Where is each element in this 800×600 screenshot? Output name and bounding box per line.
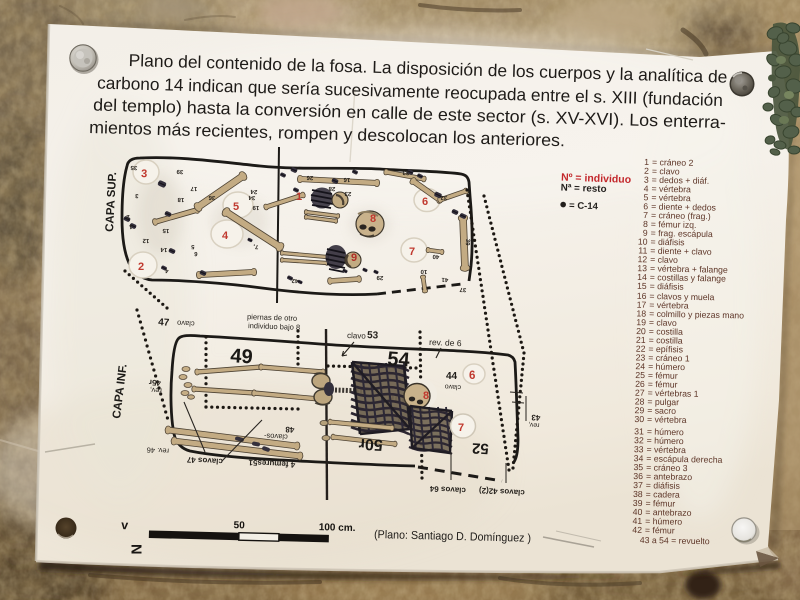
svg-text:clavos-: clavos- [263,431,288,441]
svg-text:48: 48 [285,425,295,434]
svg-text:50: 50 [233,520,245,531]
svg-text:40: 40 [432,253,440,259]
svg-text:N: N [128,544,144,554]
svg-text:39: 39 [464,238,471,246]
svg-text:1: 1 [296,191,302,203]
svg-text:individuo bajo 8: individuo bajo 8 [248,321,300,332]
svg-text:23: 23 [344,190,352,196]
svg-text:19: 19 [252,204,260,210]
svg-text:28: 28 [328,185,336,191]
svg-text:18: 18 [177,196,185,202]
svg-text:clavos 64: clavos 64 [429,484,466,495]
svg-text:29: 29 [376,274,384,280]
svg-text:2: 2 [138,261,144,273]
svg-text:8: 8 [423,390,429,402]
svg-text:52: 52 [472,439,490,457]
svg-text:49: 49 [230,345,254,368]
svg-text:26: 26 [306,174,314,180]
svg-text:50r: 50r [358,435,383,453]
svg-text:6: 6 [469,370,475,382]
svg-text:17: 17 [190,185,198,191]
svg-text:7: 7 [409,246,415,258]
svg-text:54: 54 [387,348,412,372]
svg-text:rev,: rev, [528,421,540,429]
svg-text:43: 43 [531,413,541,422]
svg-text:44: 44 [446,371,458,382]
svg-text:clavo: clavo [177,319,195,329]
svg-text:41: 41 [441,276,449,282]
svg-text:32: 32 [440,194,448,200]
svg-text:47: 47 [158,317,170,329]
svg-text:34: 34 [248,194,256,200]
svg-text:7,: 7, [253,243,259,249]
svg-text:Nª = resto: Nª = resto [561,182,607,195]
svg-text:42: 42 [291,277,299,283]
svg-text:36: 36 [208,194,216,200]
svg-text:clavos 47: clavos 47 [186,455,223,466]
svg-text:5: 5 [233,201,239,213]
svg-text:8: 8 [370,213,376,225]
svg-text:100 cm.: 100 cm. [319,522,356,534]
svg-text:6: 6 [422,196,428,208]
svg-text:37: 37 [459,286,467,292]
svg-text:33: 33 [402,169,410,175]
svg-text:16: 16 [343,176,351,182]
svg-text:7: 7 [458,422,464,434]
svg-text:rev,: rev, [150,386,162,396]
svg-text:12: 12 [142,237,150,243]
svg-text:39: 39 [176,168,184,174]
svg-text:3: 3 [141,168,148,180]
svg-text:35: 35 [130,164,138,170]
svg-text:10: 10 [420,268,428,274]
svg-text:v: v [121,518,129,532]
svg-text:4: 4 [222,230,229,242]
svg-text:rev. de 6: rev. de 6 [429,337,462,348]
svg-text:14: 14 [160,246,168,252]
svg-text:clavo: clavo [347,331,367,341]
svg-text:24: 24 [250,188,258,194]
svg-text:53: 53 [367,330,379,341]
svg-text:clavo: clavo [444,383,461,391]
svg-text:9: 9 [351,252,357,264]
svg-text:= C-14: = C-14 [569,200,599,212]
svg-text:15: 15 [162,227,170,233]
svg-text:rev. 46: rev. 46 [146,445,169,455]
